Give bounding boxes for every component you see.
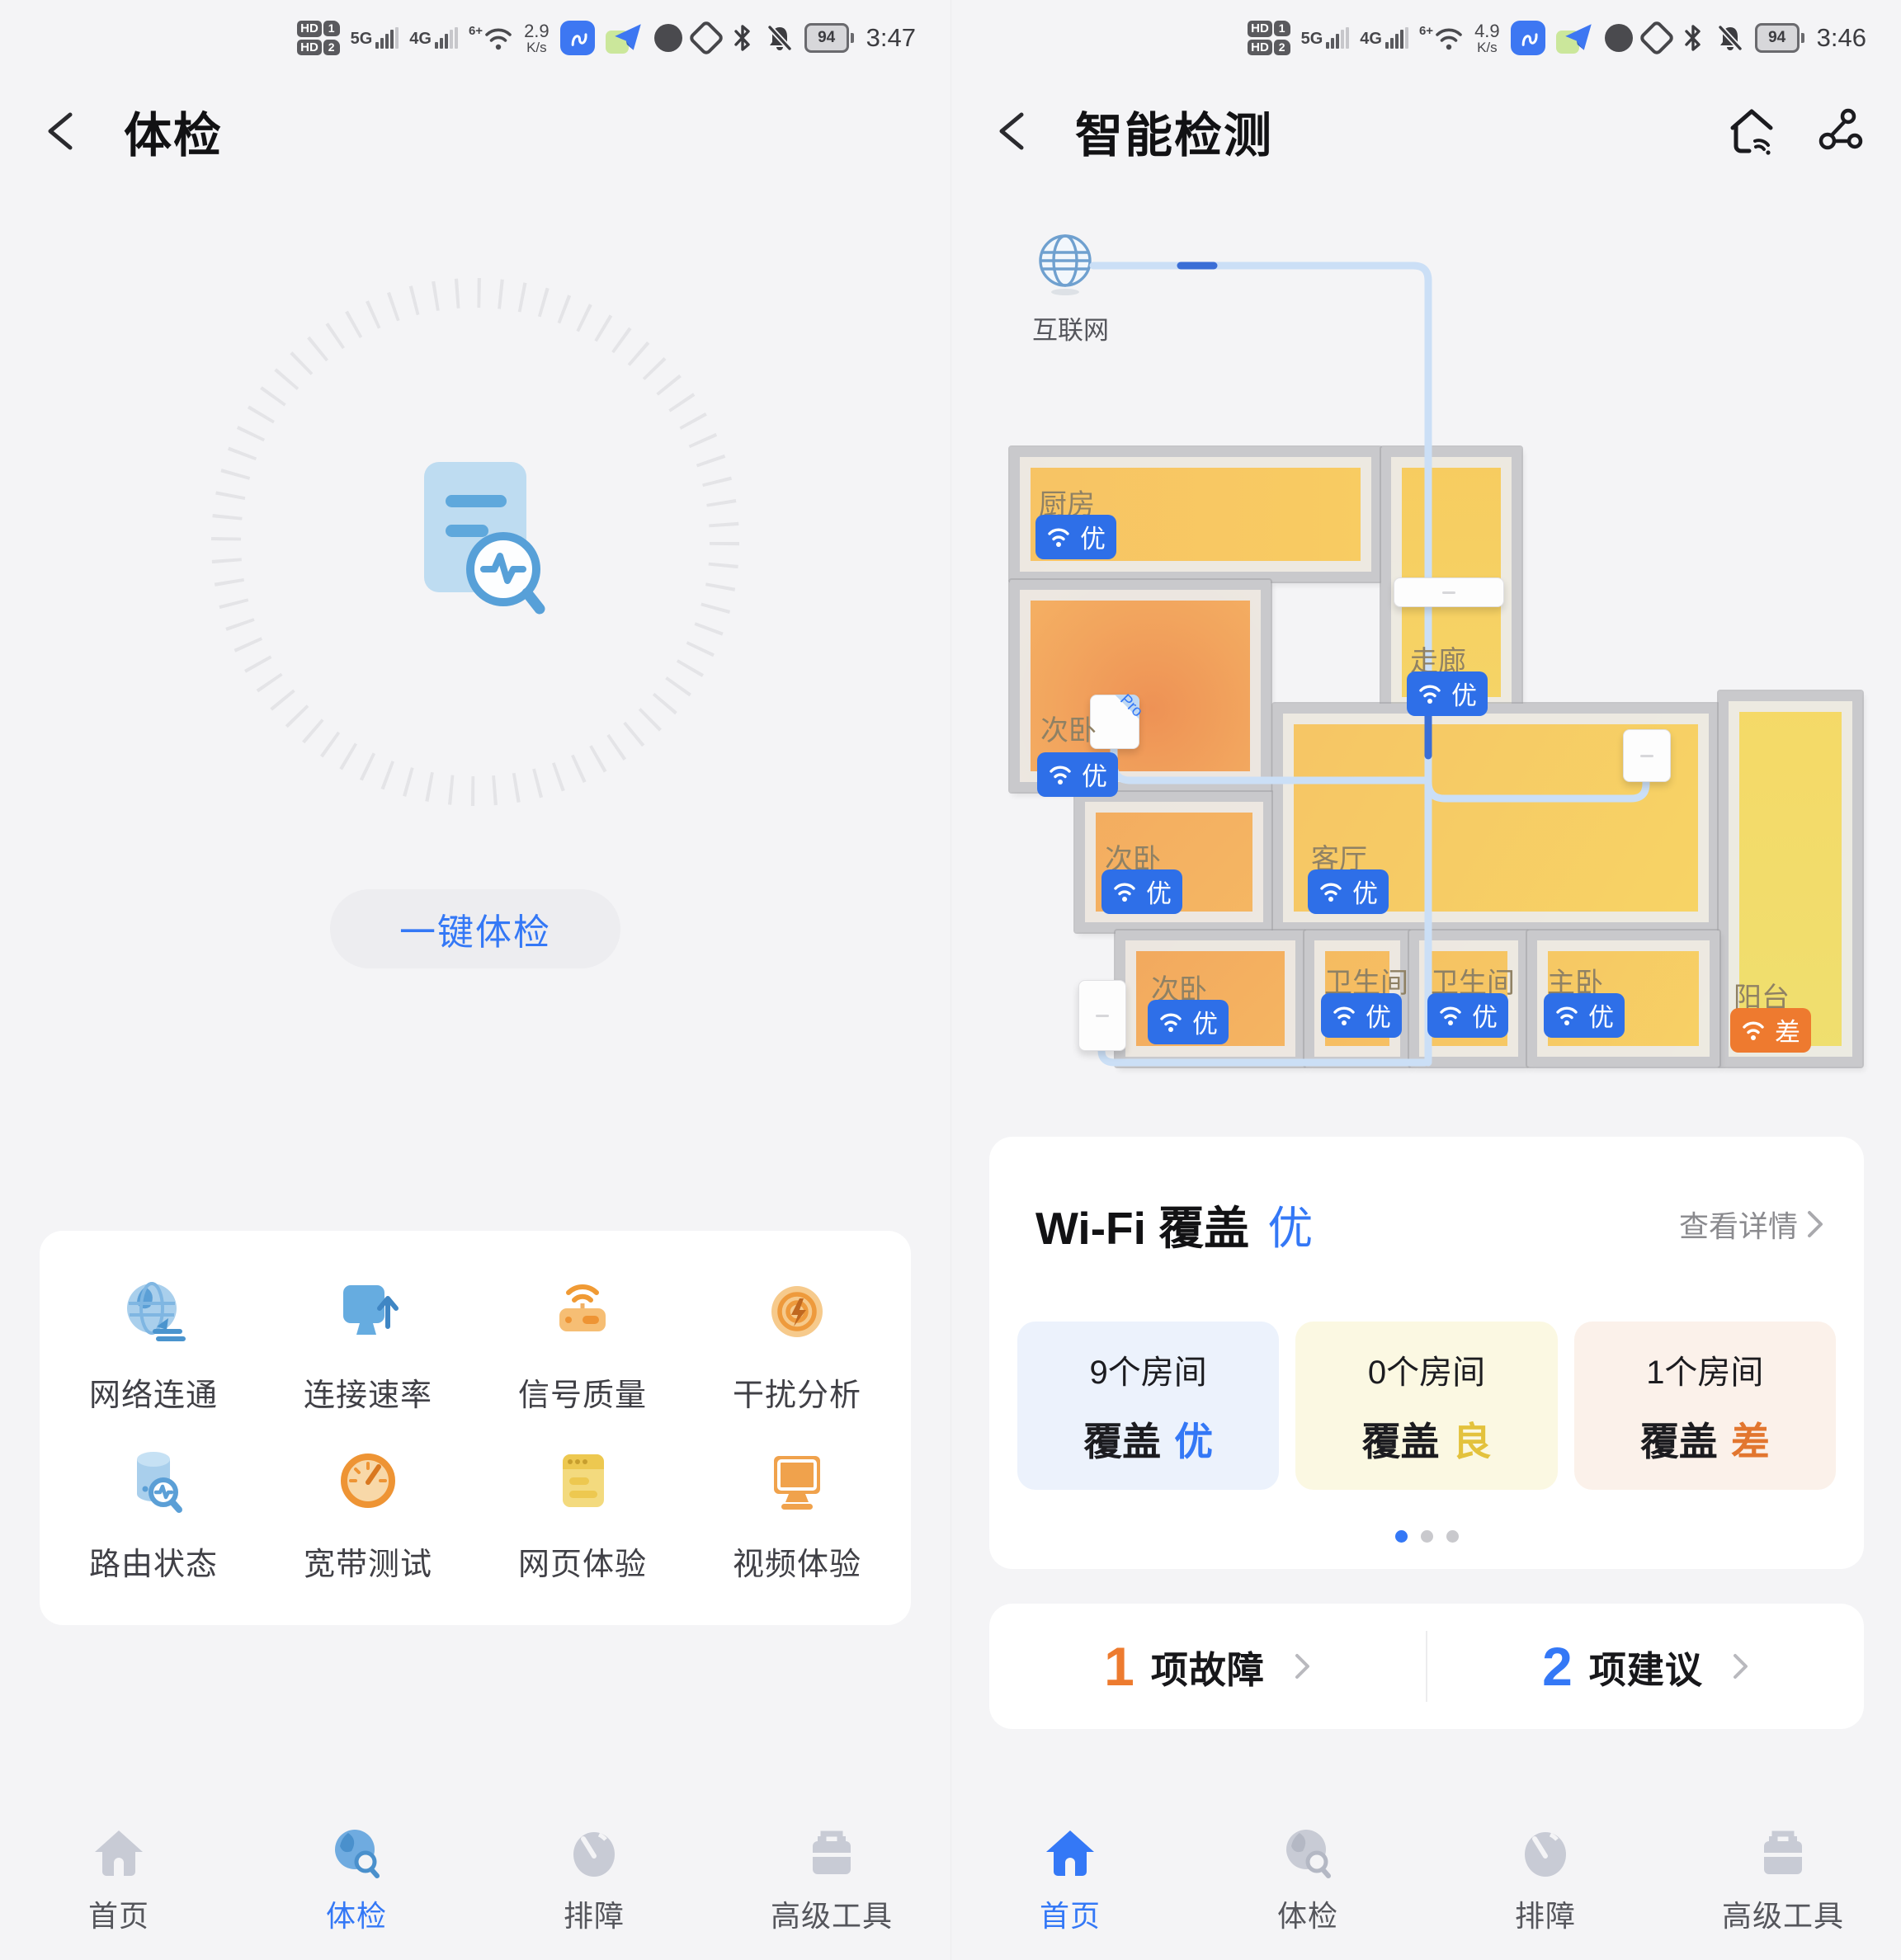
nav-advanced-tools[interactable]: 高级工具 bbox=[713, 1815, 950, 1953]
stat-good: 9个房间 覆盖优 bbox=[1017, 1322, 1279, 1490]
wifi6-label: 6+ bbox=[469, 25, 483, 37]
hd-voice-icon: HD1 HD2 bbox=[297, 21, 339, 55]
coverage-badge: 优 bbox=[1035, 515, 1116, 559]
stat-count: 0个房间 bbox=[1368, 1345, 1485, 1393]
speed-unit: K/s bbox=[526, 40, 547, 55]
hd-voice-icon: HD1 HD2 bbox=[1248, 21, 1290, 55]
nav-home[interactable]: 首页 bbox=[0, 1815, 238, 1953]
hd-badge: HD bbox=[1248, 40, 1272, 55]
living-room-ap-device bbox=[1623, 729, 1671, 782]
signal-5g-icon: 5G bbox=[351, 27, 399, 49]
hd-badge: HD bbox=[297, 40, 322, 55]
nav-checkup[interactable]: 体检 bbox=[238, 1815, 475, 1953]
tool-signal-quality[interactable]: 信号质量 bbox=[475, 1259, 690, 1428]
tv-icon bbox=[757, 1441, 837, 1520]
stat-grade: 良 bbox=[1452, 1410, 1491, 1467]
app-bar: 体检 bbox=[0, 86, 950, 177]
stat-label: 覆盖 bbox=[1640, 1410, 1718, 1467]
status-bar: HD1 HD2 5G 4G 6+ 2.9 K/s bbox=[297, 13, 916, 63]
stat-label: 覆盖 bbox=[1083, 1410, 1161, 1467]
speed-value: 4.9 bbox=[1474, 21, 1500, 40]
coverage-title: Wi-Fi 覆盖 bbox=[1035, 1191, 1249, 1257]
signal-4g-icon: 4G bbox=[1360, 27, 1408, 49]
checkup-globe-icon bbox=[328, 1825, 384, 1881]
grade-text: 优 bbox=[1366, 996, 1391, 1034]
view-details-text: 查看详情 bbox=[1679, 1203, 1798, 1246]
status-time: 3:47 bbox=[866, 23, 916, 53]
router-antenna-icon bbox=[543, 1272, 622, 1351]
tool-label: 干扰分析 bbox=[733, 1369, 861, 1415]
tool-label: 网页体验 bbox=[518, 1538, 647, 1584]
toolbox-icon bbox=[1755, 1825, 1811, 1881]
tool-router-status[interactable]: 路由状态 bbox=[46, 1428, 261, 1597]
signal-5g-icon: 5G bbox=[1301, 27, 1350, 49]
coverage-badge: 优 bbox=[1544, 993, 1625, 1038]
page-title: 体检 bbox=[124, 97, 223, 166]
suggestion-count: 2 bbox=[1542, 1639, 1573, 1694]
wifi-coverage-card: Wi-Fi 覆盖 优 查看详情 9个房间 覆盖优 0个房间 覆盖良 1个房间 覆… bbox=[989, 1137, 1864, 1569]
chat-dot-icon bbox=[1605, 24, 1633, 52]
tool-connection-speed[interactable]: 连接速率 bbox=[261, 1259, 475, 1428]
status-bar: HD1 HD2 5G 4G 6+ 4.9 K/s bbox=[1248, 13, 1866, 63]
notification-muted-icon bbox=[1716, 24, 1744, 52]
nav-checkup[interactable]: 体检 bbox=[1189, 1815, 1427, 1953]
internet-node: 互联网 bbox=[1032, 233, 1098, 346]
tool-label: 路由状态 bbox=[89, 1538, 218, 1584]
internet-label: 互联网 bbox=[1032, 309, 1098, 346]
wifi-arcs-icon bbox=[1434, 25, 1464, 51]
topology-icon[interactable] bbox=[1817, 106, 1863, 156]
stat-count: 9个房间 bbox=[1090, 1345, 1207, 1393]
wifi6-label: 6+ bbox=[1419, 25, 1433, 37]
gauge-icon bbox=[566, 1825, 622, 1881]
tool-interference-analysis[interactable]: 干扰分析 bbox=[690, 1259, 904, 1428]
internet-globe-icon bbox=[1035, 233, 1096, 297]
suggestions-entry[interactable]: 2 项建议 bbox=[1427, 1639, 1864, 1694]
nav-label: 排障 bbox=[1515, 1892, 1576, 1935]
dot-active[interactable] bbox=[1395, 1530, 1408, 1543]
faults-entry[interactable]: 1 项故障 bbox=[989, 1639, 1426, 1694]
speedometer-icon bbox=[328, 1441, 408, 1520]
interference-target-icon bbox=[757, 1272, 837, 1351]
dot[interactable] bbox=[1421, 1530, 1433, 1543]
coverage-badge: 优 bbox=[1321, 993, 1402, 1038]
coverage-badge: 优 bbox=[1148, 1000, 1229, 1044]
gauge-icon bbox=[1517, 1825, 1573, 1881]
signal-4g-icon: 4G bbox=[409, 27, 458, 49]
coverage-stats: 9个房间 覆盖优 0个房间 覆盖良 1个房间 覆盖差 bbox=[1017, 1322, 1836, 1490]
home-icon bbox=[1042, 1825, 1098, 1881]
paper-plane-icon bbox=[1563, 22, 1594, 52]
net2-label: 4G bbox=[409, 31, 432, 49]
page-title: 智能检测 bbox=[1075, 97, 1273, 166]
bottom-nav: 首页 体检 排障 高级 bbox=[951, 1815, 1901, 1953]
coverage-badge: 优 bbox=[1101, 869, 1182, 914]
grade-text: 差 bbox=[1775, 1011, 1800, 1048]
shield-outline-icon bbox=[687, 19, 724, 56]
nav-label: 体检 bbox=[1277, 1892, 1338, 1935]
grade-text: 优 bbox=[1192, 1003, 1218, 1040]
checkup-tools-card: 网络连通 连接速率 信号质量 bbox=[40, 1231, 911, 1625]
toolbox-icon bbox=[804, 1825, 860, 1881]
network-speed: 4.9 K/s bbox=[1474, 21, 1500, 55]
smart-detection-screen: HD1 HD2 5G 4G 6+ 4.9 K/s bbox=[950, 0, 1901, 1960]
stat-grade: 优 bbox=[1174, 1410, 1213, 1467]
bottom-nav: 首页 体检 排障 高级 bbox=[0, 1815, 950, 1953]
battery-percent: 94 bbox=[818, 29, 835, 47]
grade-text: 优 bbox=[1472, 996, 1498, 1034]
sim2-badge: 2 bbox=[323, 40, 340, 55]
back-button[interactable] bbox=[38, 108, 84, 154]
coverage-badge: 优 bbox=[1308, 869, 1389, 914]
chat-dot-icon bbox=[654, 24, 682, 52]
health-check-screen: HD1 HD2 5G 4G 6+ 2.9 K/s bbox=[0, 0, 950, 1960]
home-icon bbox=[91, 1825, 147, 1881]
suggestion-label: 项建议 bbox=[1589, 1640, 1703, 1694]
nav-label: 首页 bbox=[88, 1892, 149, 1935]
tool-label: 连接速率 bbox=[304, 1369, 432, 1415]
status-time: 3:46 bbox=[1817, 23, 1866, 53]
bluetooth-icon bbox=[1681, 24, 1705, 52]
room-label: 次卧 bbox=[1040, 708, 1097, 748]
battery-icon: 94 bbox=[804, 23, 854, 53]
nav-label: 高级工具 bbox=[771, 1892, 893, 1935]
network-speed: 2.9 K/s bbox=[524, 21, 550, 55]
router-cylinder-icon bbox=[114, 1441, 193, 1520]
bluetooth-icon bbox=[730, 24, 755, 52]
nav-advanced-tools[interactable]: 高级工具 bbox=[1664, 1815, 1901, 1953]
scan-dial bbox=[209, 276, 742, 808]
battery-percent: 94 bbox=[1768, 29, 1785, 47]
stat-fair: 0个房间 覆盖良 bbox=[1295, 1322, 1557, 1490]
coverage-badge: 优 bbox=[1427, 993, 1508, 1038]
stat-grade: 差 bbox=[1731, 1410, 1770, 1467]
dot[interactable] bbox=[1446, 1530, 1459, 1543]
hd-badge: HD bbox=[297, 21, 322, 36]
chevron-right-icon bbox=[1733, 1652, 1749, 1680]
nav-label: 首页 bbox=[1040, 1892, 1101, 1935]
hd-badge: HD bbox=[1248, 21, 1272, 36]
tool-network-connectivity[interactable]: 网络连通 bbox=[46, 1259, 261, 1428]
findings-card: 1 项故障 2 项建议 bbox=[989, 1604, 1864, 1729]
tool-label: 宽带测试 bbox=[304, 1538, 432, 1584]
sim2-badge: 2 bbox=[1274, 40, 1290, 55]
battery-icon: 94 bbox=[1755, 23, 1804, 53]
report-document-icon bbox=[409, 455, 550, 633]
nav-troubleshoot[interactable]: 排障 bbox=[1427, 1815, 1664, 1953]
nav-label: 高级工具 bbox=[1722, 1892, 1844, 1935]
view-details-link[interactable]: 查看详情 bbox=[1679, 1203, 1824, 1246]
fault-count: 1 bbox=[1104, 1639, 1134, 1694]
tool-broadband-test[interactable]: 宽带测试 bbox=[261, 1428, 475, 1597]
tool-label: 视频体验 bbox=[733, 1538, 861, 1584]
carousel-dots[interactable] bbox=[989, 1530, 1864, 1543]
grade-text: 优 bbox=[1080, 518, 1106, 555]
wifi-icon: 6+ bbox=[469, 25, 513, 51]
home-wifi-icon[interactable] bbox=[1728, 106, 1776, 156]
checkup-globe-icon bbox=[1280, 1825, 1336, 1881]
tool-label: 网络连通 bbox=[89, 1369, 218, 1415]
app-bar: 智能检测 bbox=[951, 86, 1901, 177]
net1-label: 5G bbox=[351, 31, 373, 49]
sim1-badge: 1 bbox=[1274, 21, 1290, 36]
grade-text: 优 bbox=[1082, 756, 1107, 793]
wall-ap-pro-device: Pro bbox=[1090, 695, 1139, 749]
speed-unit: K/s bbox=[1477, 40, 1498, 55]
one-key-checkup-button[interactable]: 一键体检 bbox=[330, 889, 620, 968]
corridor-router-device bbox=[1394, 577, 1504, 607]
sim1-badge: 1 bbox=[323, 21, 340, 36]
coverage-badge: 优 bbox=[1037, 752, 1118, 797]
nav-home[interactable]: 首页 bbox=[951, 1815, 1189, 1953]
bottom-ap-device bbox=[1078, 980, 1126, 1051]
globe-icon bbox=[114, 1272, 193, 1351]
tool-video-experience[interactable]: 视频体验 bbox=[690, 1428, 904, 1597]
nav-label: 排障 bbox=[564, 1892, 625, 1935]
net2-label: 4G bbox=[1360, 31, 1382, 49]
webpage-icon bbox=[543, 1441, 622, 1520]
shield-outline-icon bbox=[1638, 19, 1675, 56]
chevron-right-icon bbox=[1295, 1652, 1311, 1680]
nav-troubleshoot[interactable]: 排障 bbox=[475, 1815, 713, 1953]
messenger-icons bbox=[1556, 21, 1594, 55]
grade-text: 优 bbox=[1451, 675, 1477, 712]
coverage-badge: 优 bbox=[1407, 671, 1488, 716]
fault-label: 项故障 bbox=[1151, 1640, 1265, 1694]
paper-plane-icon bbox=[612, 22, 644, 52]
tool-label: 信号质量 bbox=[518, 1369, 647, 1415]
nav-label: 体检 bbox=[326, 1892, 387, 1935]
stat-poor: 1个房间 覆盖差 bbox=[1574, 1322, 1836, 1490]
speed-value: 2.9 bbox=[524, 21, 550, 40]
wifi-arcs-icon bbox=[484, 25, 513, 51]
grade-text: 优 bbox=[1588, 996, 1614, 1034]
tool-web-experience[interactable]: 网页体验 bbox=[475, 1428, 690, 1597]
ailife-app-icon bbox=[560, 21, 595, 55]
stat-count: 1个房间 bbox=[1646, 1345, 1763, 1393]
room-bedroom-c bbox=[1116, 931, 1305, 1067]
monitor-arrow-icon bbox=[328, 1272, 408, 1351]
grade-text: 优 bbox=[1352, 873, 1378, 910]
chevron-right-icon bbox=[1806, 1209, 1824, 1239]
coverage-badge-poor: 差 bbox=[1730, 1008, 1811, 1053]
messenger-icons bbox=[606, 21, 644, 55]
net1-label: 5G bbox=[1301, 31, 1323, 49]
stat-label: 覆盖 bbox=[1361, 1410, 1439, 1467]
grade-text: 优 bbox=[1146, 873, 1172, 910]
wifi-icon: 6+ bbox=[1419, 25, 1464, 51]
ailife-app-icon bbox=[1511, 21, 1545, 55]
back-button[interactable] bbox=[989, 108, 1035, 154]
notification-muted-icon bbox=[766, 24, 794, 52]
coverage-grade: 优 bbox=[1267, 1191, 1313, 1257]
